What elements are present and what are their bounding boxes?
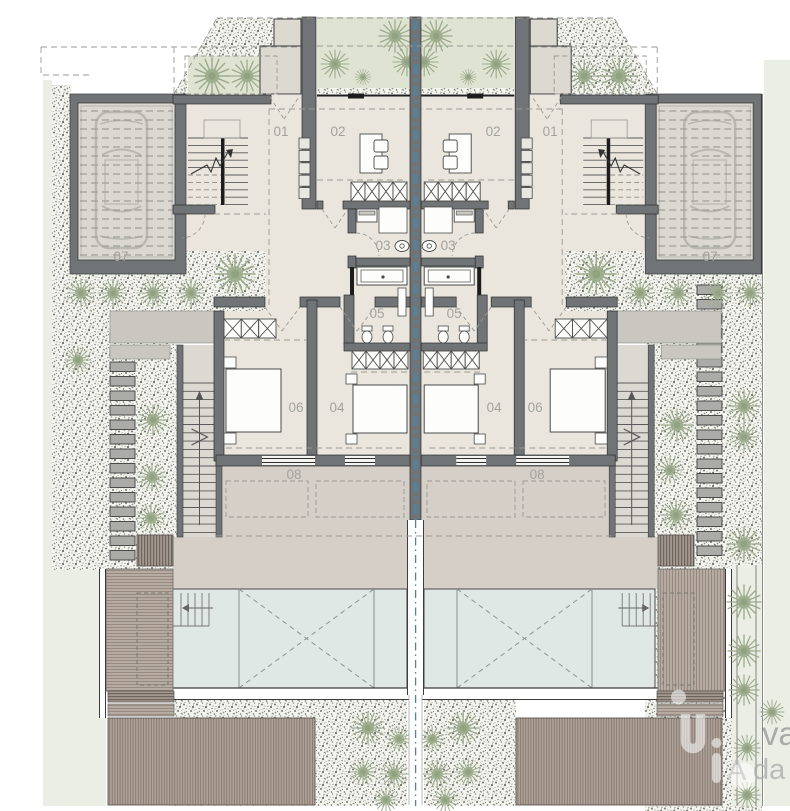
svg-text:05: 05 [369,306,384,321]
svg-text:03: 03 [441,238,456,253]
svg-text:07: 07 [113,249,128,264]
svg-text:08: 08 [530,467,545,482]
svg-text:04: 04 [487,400,503,415]
svg-text:06: 06 [288,400,303,415]
svg-text:04: 04 [329,400,345,415]
svg-text:da: da [753,754,786,786]
svg-text:06: 06 [528,400,543,415]
svg-text:va: va [762,715,790,752]
svg-text:A: A [727,755,747,787]
svg-text:01: 01 [273,124,288,139]
svg-text:08: 08 [286,467,301,482]
svg-text:02: 02 [486,124,501,139]
svg-text:07: 07 [703,249,718,264]
svg-text:05: 05 [447,306,462,321]
svg-text:02: 02 [330,124,345,139]
svg-text:03: 03 [375,238,390,253]
svg-text:01: 01 [543,124,558,139]
